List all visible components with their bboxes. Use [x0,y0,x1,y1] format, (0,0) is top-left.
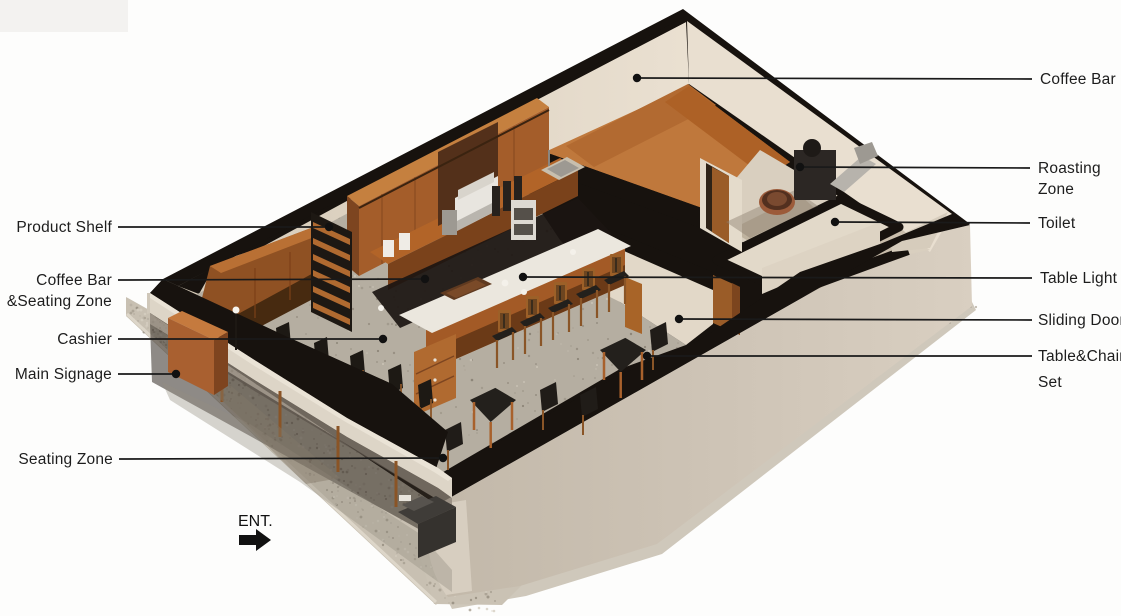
svg-text:Table Light: Table Light [1040,270,1118,287]
svg-text:Seating Zone: Seating Zone [18,451,113,468]
svg-text:Cashier: Cashier [57,331,112,348]
svg-text:Main Signage: Main Signage [15,366,112,383]
svg-text:Coffee Bar: Coffee Bar [1040,71,1116,88]
svg-text:Toilet: Toilet [1038,215,1076,232]
svg-text:Table&Chair: Table&Chair [1038,348,1121,365]
svg-text:Roasting: Roasting [1038,160,1101,177]
svg-text:ENT.: ENT. [238,513,273,530]
svg-text:Coffee Bar: Coffee Bar [36,272,112,289]
svg-text:Product Shelf: Product Shelf [16,219,112,236]
svg-text:&Seating Zone: &Seating Zone [7,293,112,310]
svg-text:Set: Set [1038,374,1062,391]
svg-text:Sliding Door: Sliding Door [1038,312,1121,329]
svg-text:Zone: Zone [1038,181,1074,198]
